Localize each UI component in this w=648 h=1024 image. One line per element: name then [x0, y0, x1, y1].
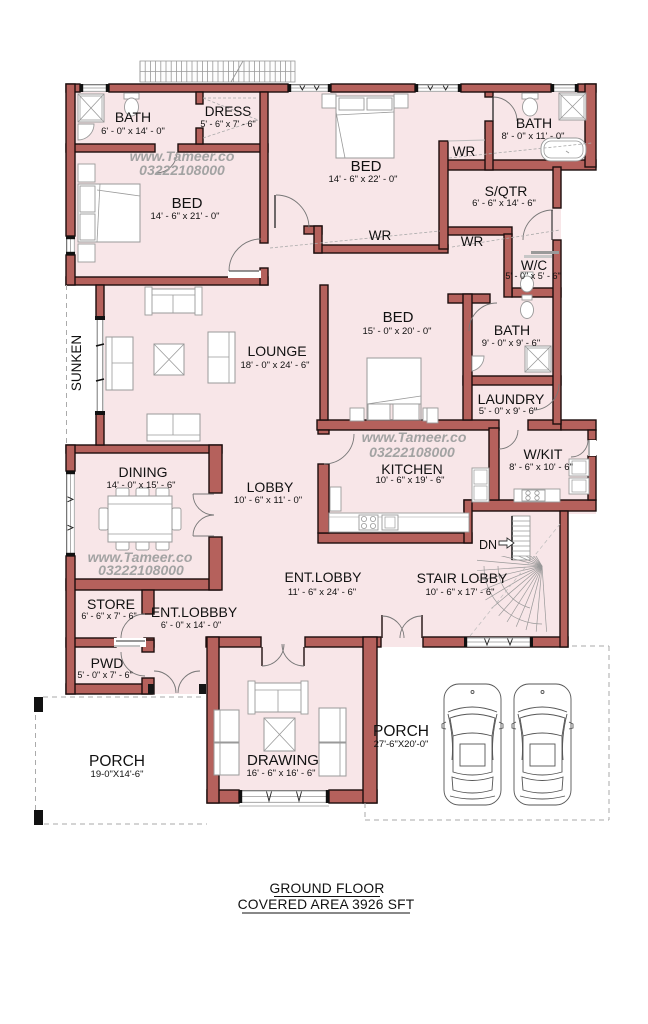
svg-text:10' - 6" x 19' - 6": 10' - 6" x 19' - 6": [376, 475, 445, 486]
svg-text:19-0"X14'-6": 19-0"X14'-6": [91, 769, 144, 780]
svg-text:10' - 6" x 17' - 6": 10' - 6" x 17' - 6": [426, 587, 495, 598]
svg-text:BED: BED: [351, 158, 382, 175]
svg-text:6' - 0" x 14' - 0": 6' - 0" x 14' - 0": [101, 126, 165, 137]
svg-text:16' - 6" x 16' - 6": 16' - 6" x 16' - 6": [247, 768, 316, 779]
svg-text:18' - 0" x 24' - 6": 18' - 0" x 24' - 6": [241, 360, 310, 371]
svg-text:BED: BED: [172, 195, 203, 212]
svg-text:8' - 0" x 11' - 0": 8' - 0" x 11' - 0": [502, 131, 565, 142]
svg-text:5' - 0" x 9' - 6": 5' - 0" x 9' - 6": [479, 406, 537, 417]
svg-text:03222108000: 03222108000: [98, 562, 184, 578]
svg-text:6' - 0" x 14' - 0": 6' - 0" x 14' - 0": [161, 620, 221, 630]
svg-text:9' - 0" x 9' - 6": 9' - 0" x 9' - 6": [482, 338, 540, 349]
svg-text:STORE: STORE: [87, 596, 135, 612]
svg-text:BATH: BATH: [516, 115, 552, 131]
svg-text:5' - 0" x 5' - 6": 5' - 0" x 5' - 6": [505, 271, 560, 281]
svg-text:ENT.LOBBBY: ENT.LOBBBY: [151, 604, 238, 620]
svg-text:WR: WR: [453, 144, 476, 159]
svg-text:ENT.LOBBY: ENT.LOBBY: [284, 569, 362, 585]
svg-text:BATH: BATH: [115, 109, 151, 125]
svg-text:STAIR LOBBY: STAIR LOBBY: [417, 570, 508, 586]
svg-text:BATH: BATH: [494, 322, 530, 338]
svg-text:DINING: DINING: [119, 464, 168, 480]
svg-text:SUNKEN: SUNKEN: [69, 335, 84, 391]
svg-text:6' - 6" x 14' - 6": 6' - 6" x 14' - 6": [472, 198, 536, 209]
svg-text:03222108000: 03222108000: [369, 444, 455, 460]
svg-text:DRESS: DRESS: [205, 104, 252, 119]
svg-text:PWD: PWD: [91, 655, 124, 671]
svg-text:03222108000: 03222108000: [139, 162, 225, 178]
svg-text:LOUNGE: LOUNGE: [247, 343, 306, 359]
svg-text:15' - 0" x 20' - 0": 15' - 0" x 20' - 0": [363, 326, 432, 337]
svg-text:5' - 0" x 7' - 6": 5' - 0" x 7' - 6": [77, 670, 132, 680]
svg-text:DN: DN: [479, 538, 497, 552]
svg-text:DRAWING: DRAWING: [247, 752, 319, 769]
svg-text:W/KIT: W/KIT: [524, 446, 563, 462]
svg-text:WR: WR: [369, 228, 392, 243]
svg-text:14' - 0" x 15' - 6": 14' - 0" x 15' - 6": [107, 480, 176, 491]
svg-text:27'-6"X20'-0": 27'-6"X20'-0": [374, 739, 429, 750]
svg-text:14' - 6" x 22' - 0": 14' - 6" x 22' - 0": [329, 174, 398, 185]
svg-text:10' - 6" x 11' - 0": 10' - 6" x 11' - 0": [234, 495, 302, 506]
svg-text:LAUNDRY: LAUNDRY: [478, 391, 545, 407]
svg-text:14' - 6" x 21' - 0": 14' - 6" x 21' - 0": [151, 211, 220, 222]
svg-text:www.Tameer.co: www.Tameer.co: [362, 429, 467, 445]
svg-text:PORCH: PORCH: [373, 723, 429, 740]
svg-text:11' - 6" x 24' - 6": 11' - 6" x 24' - 6": [288, 587, 356, 598]
svg-text:S/QTR: S/QTR: [485, 183, 528, 199]
svg-text:GROUND FLOOR: GROUND FLOOR: [269, 881, 384, 896]
svg-text:COVERED AREA 3926 SFT: COVERED AREA 3926 SFT: [238, 897, 415, 912]
svg-text:LOBBY: LOBBY: [247, 479, 294, 495]
svg-text:WR: WR: [461, 234, 484, 249]
svg-text:8' - 6" x 10' - 6": 8' - 6" x 10' - 6": [509, 462, 573, 473]
svg-text:5' - 6" x 7' - 6": 5' - 6" x 7' - 6": [200, 119, 255, 129]
svg-text:BED: BED: [383, 309, 414, 326]
svg-text:PORCH: PORCH: [89, 753, 145, 770]
svg-text:6' - 6" x 7' - 6": 6' - 6" x 7' - 6": [81, 611, 136, 621]
